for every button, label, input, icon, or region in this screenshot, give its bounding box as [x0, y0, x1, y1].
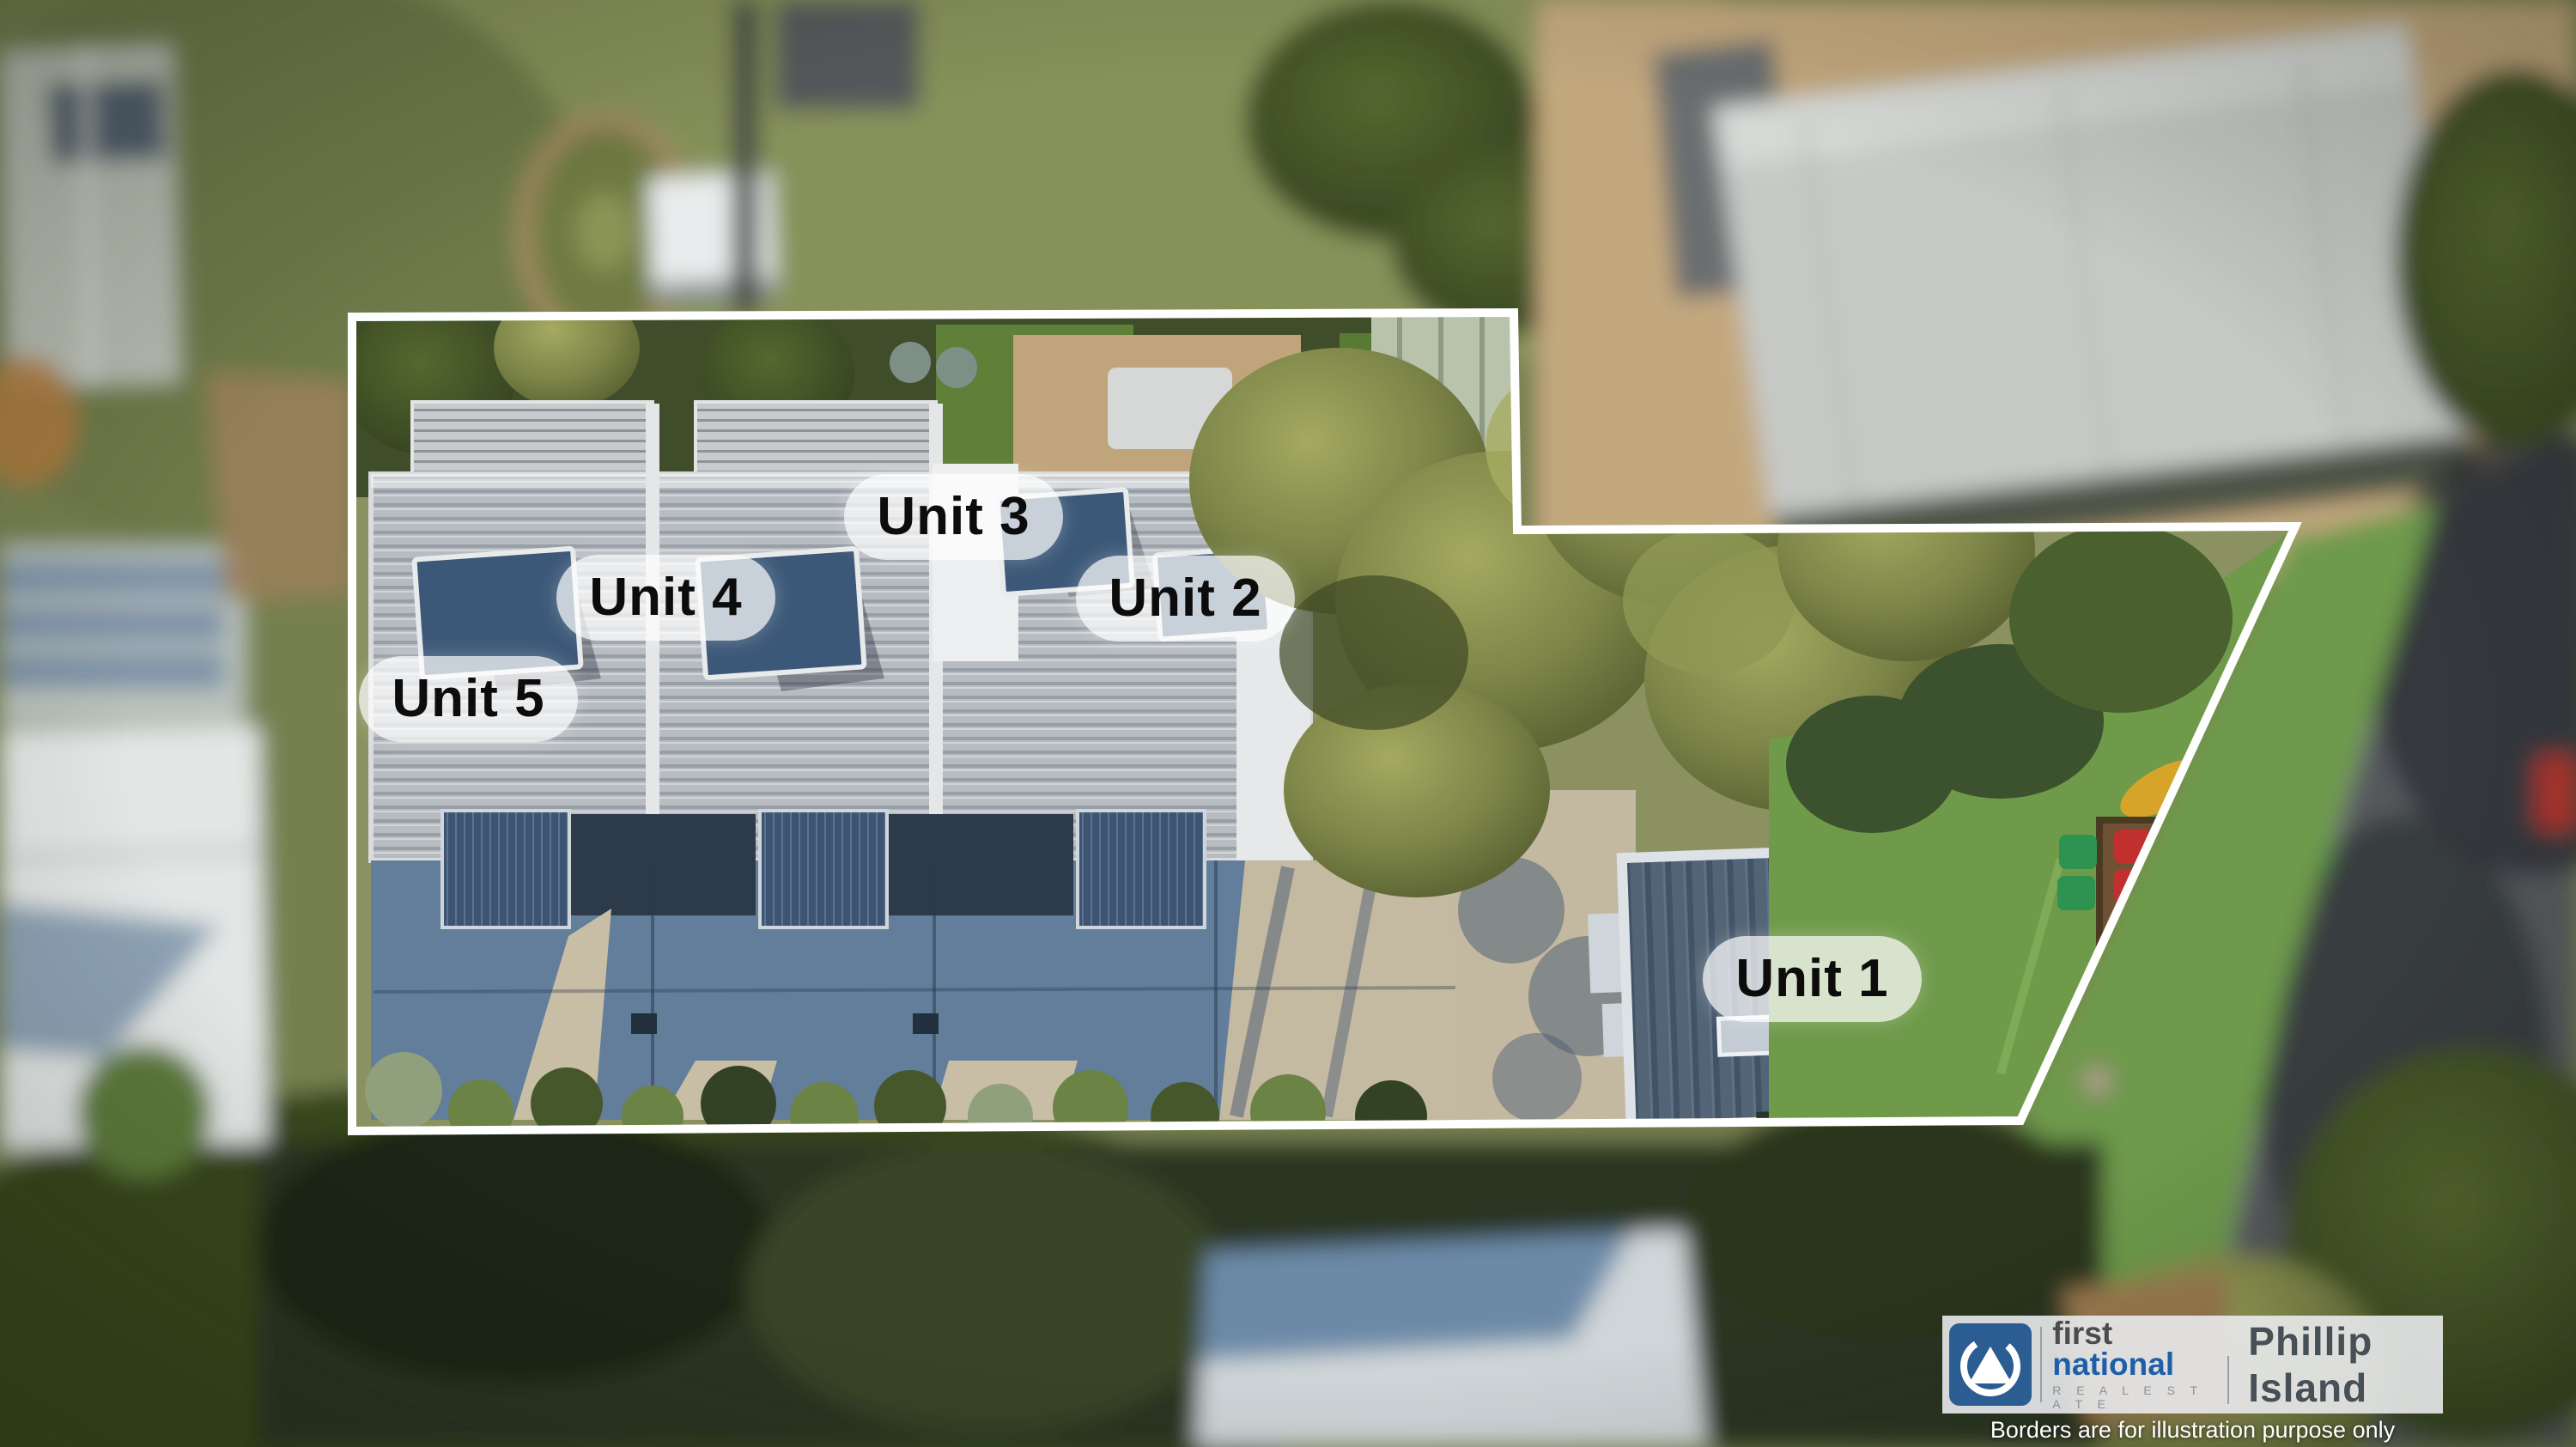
- unit-3-label: Unit 3: [844, 474, 1063, 560]
- neighbour-dark-roof: [775, 0, 920, 110]
- banner-divider: [2227, 1356, 2229, 1404]
- neighbour-driveway: [732, 0, 758, 316]
- unit-4-label: Unit 4: [556, 555, 775, 641]
- borders-disclaimer: Borders are for illustration purpose onl…: [1925, 1417, 2460, 1444]
- neighbour-house-top-left: [0, 45, 180, 388]
- brand-text: first national R E A L E S T A T E: [2052, 1318, 2219, 1410]
- manhole-cover: [2081, 1066, 2112, 1097]
- parked-car: [2535, 754, 2576, 831]
- brand-national: national: [2052, 1349, 2219, 1379]
- green-bin: [2059, 835, 2097, 869]
- garage-roof: [442, 811, 1205, 927]
- aerial-listing-photo: Unit 5 Unit 4 Unit 3 Unit 2 Unit 1 first…: [0, 0, 2576, 1447]
- agency-watermark-banner: first national R E A L E S T A T E Phill…: [1942, 1316, 2443, 1414]
- unit-5-label: Unit 5: [359, 656, 578, 742]
- brand-tagline: R E A L E S T A T E: [2052, 1383, 2219, 1411]
- unit-2-label: Unit 2: [1076, 556, 1295, 641]
- office-name: Phillip Island: [2248, 1318, 2443, 1411]
- brand-first: first: [2052, 1318, 2219, 1348]
- banner-divider: [2040, 1327, 2042, 1402]
- green-bin: [2057, 876, 2095, 910]
- first-national-logo-icon: [1949, 1323, 2032, 1406]
- unit-1-label: Unit 1: [1703, 936, 1922, 1022]
